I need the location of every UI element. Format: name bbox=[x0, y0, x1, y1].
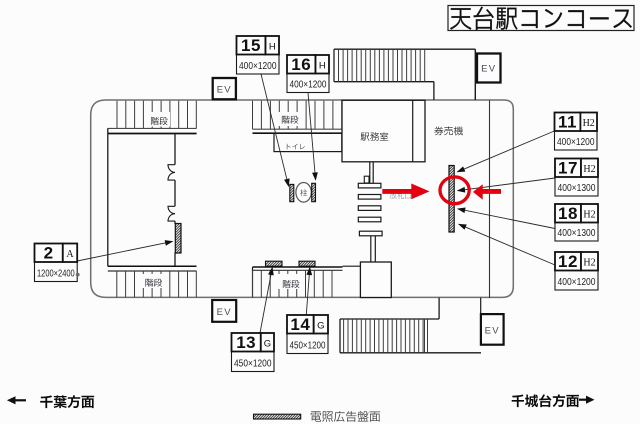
svg-text:EV: EV bbox=[485, 326, 500, 337]
svg-text:15: 15 bbox=[241, 36, 261, 55]
svg-text:EV: EV bbox=[217, 307, 232, 318]
svg-text:A: A bbox=[66, 249, 74, 260]
svg-text:14: 14 bbox=[290, 315, 310, 334]
svg-text:11: 11 bbox=[558, 113, 577, 132]
svg-text:H2: H2 bbox=[583, 118, 595, 129]
svg-text:H: H bbox=[319, 61, 326, 72]
svg-text:G: G bbox=[264, 339, 271, 350]
svg-text:EV: EV bbox=[481, 64, 496, 75]
svg-text:400×1300: 400×1300 bbox=[558, 183, 596, 194]
svg-text:400×1200: 400×1200 bbox=[290, 80, 327, 91]
svg-text:13: 13 bbox=[236, 333, 256, 352]
svg-text:18: 18 bbox=[558, 204, 578, 223]
svg-text:16: 16 bbox=[291, 55, 311, 74]
svg-text:H2: H2 bbox=[583, 210, 595, 221]
svg-text:EV: EV bbox=[217, 85, 232, 96]
svg-text:450×1200: 450×1200 bbox=[234, 359, 272, 370]
svg-text:400×1200: 400×1200 bbox=[558, 277, 596, 288]
svg-text:17: 17 bbox=[558, 159, 578, 178]
svg-text:2: 2 bbox=[44, 244, 54, 263]
svg-text:400×1200: 400×1200 bbox=[557, 137, 595, 148]
svg-text:12: 12 bbox=[558, 252, 578, 271]
svg-text:400×1200: 400×1200 bbox=[239, 61, 277, 72]
svg-text:H2: H2 bbox=[583, 164, 595, 175]
svg-text:1200×2400: 1200×2400 bbox=[37, 269, 75, 280]
svg-text:H: H bbox=[269, 42, 276, 53]
svg-text:450×1200: 450×1200 bbox=[290, 341, 326, 352]
svg-text:H2: H2 bbox=[583, 258, 595, 269]
svg-text:G: G bbox=[317, 321, 324, 332]
svg-text:400×1300: 400×1300 bbox=[558, 228, 596, 239]
